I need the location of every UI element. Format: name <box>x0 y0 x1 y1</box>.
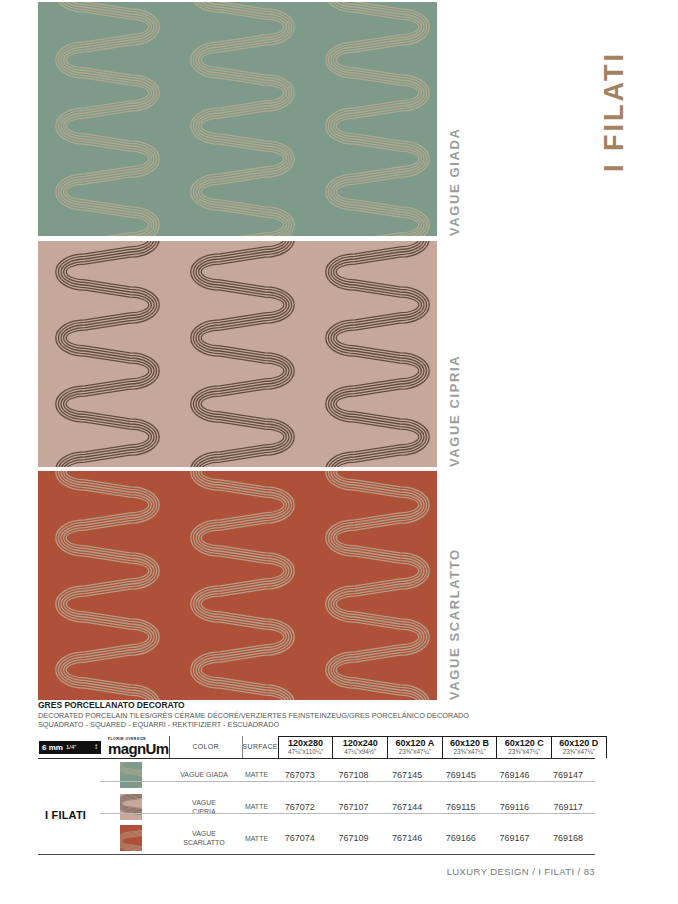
table-row-vague-scarlatto: VAGUE SCARLATTO MATTE 767074 767109 7671… <box>38 823 595 855</box>
column-header-surface: SURFACE <box>242 736 278 758</box>
tile-swatch-vague-cipria <box>38 241 437 467</box>
material-translations: DECORATED PORCELAIN TILES/GRÈS CÉRAME DÉ… <box>38 711 598 720</box>
color-thumbnail-giada <box>120 762 142 788</box>
column-header-size-60x120c: 60x120 C 23⅝"x47¼" <box>496 736 551 758</box>
product-code: 767108 <box>327 770 381 780</box>
thickness-arrow-icon: ↕ <box>94 743 98 751</box>
column-header-size-60x120d: 60x120 D 23⅝"x47¼" <box>551 736 607 758</box>
column-header-size-120x280: 120x280 47¼"x110¼" <box>278 736 333 758</box>
table-row-vague-giada: VAGUE GIADA MATTE 767073 767108 767145 7… <box>38 759 595 791</box>
table-bottom-border <box>38 854 595 855</box>
swatch-panel-vague-scarlatto <box>38 471 437 700</box>
color-thumbnail-cipria <box>120 794 142 820</box>
column-header-color: COLOR <box>170 736 242 758</box>
product-code: 767144 <box>380 802 434 812</box>
product-code: 769147 <box>541 770 595 780</box>
row-divider <box>100 813 595 814</box>
product-code: 769167 <box>488 833 542 843</box>
material-finishing: SQUADRATO - SQUARED - EQUARRI - REKTIFIZ… <box>38 720 598 729</box>
product-code: 769146 <box>488 770 542 780</box>
swatch-label-vague-scarlatto: VAGUE SCARLATTO <box>447 471 465 700</box>
product-code: 767107 <box>327 802 381 812</box>
table-row-vague-cipria: VAGUE CIPRIA MATTE 767072 767107 767144 … <box>38 791 595 823</box>
product-code: 769115 <box>434 802 488 812</box>
surface-value: MATTE <box>240 803 273 810</box>
page-footer: LUXURY DESIGN / I FILATI / 83 <box>447 866 595 877</box>
surface-value: MATTE <box>240 835 273 842</box>
brand-cell: 6 mm 1/4" ↕ FLORIM OVERSIZE magnUm <box>38 736 170 758</box>
swatch-panel-vague-cipria <box>38 241 437 467</box>
swatch-label-vague-cipria: VAGUE CIPRIA <box>447 241 465 467</box>
thickness-badge: 6 mm 1/4" ↕ <box>39 741 101 754</box>
row-divider <box>100 781 595 782</box>
product-code: 767146 <box>380 833 434 843</box>
spec-table-body: I FILATI VAGUE GIADA MATTE 767073 767108… <box>38 759 595 855</box>
product-code: 767073 <box>273 770 327 780</box>
catalog-page: VAGUE GIADA VAGUE CIPRIA VAGUE SCARLATTO… <box>0 0 678 904</box>
surface-value: MATTE <box>240 771 273 778</box>
product-code: 769166 <box>434 833 488 843</box>
product-code: 767074 <box>273 833 327 843</box>
product-code: 767072 <box>273 802 327 812</box>
thickness-mm: 6 mm <box>42 743 63 752</box>
thickness-inches: 1/4" <box>66 744 76 750</box>
tile-swatch-vague-giada <box>38 2 437 236</box>
color-thumbnail-scarlatto <box>120 825 142 851</box>
column-header-size-60x120a: 60x120 A 23⅝"x47¼" <box>387 736 442 758</box>
product-code: 767145 <box>380 770 434 780</box>
material-description: GRES PORCELLANATO DECORATO DECORATED POR… <box>38 700 598 729</box>
tile-swatch-vague-scarlatto <box>38 471 437 700</box>
product-code: 769168 <box>541 833 595 843</box>
color-name: VAGUE SCARLATTO <box>180 829 228 847</box>
collection-title: I FILATI <box>599 30 630 172</box>
spec-table-header: 6 mm 1/4" ↕ FLORIM OVERSIZE magnUm COLOR… <box>38 736 595 759</box>
swatch-label-vague-giada: VAGUE GIADA <box>447 2 465 236</box>
product-code: 769117 <box>541 802 595 812</box>
spec-table: 6 mm 1/4" ↕ FLORIM OVERSIZE magnUm COLOR… <box>38 736 595 855</box>
material-title: GRES PORCELLANATO DECORATO <box>38 700 598 711</box>
product-code: 767109 <box>327 833 381 843</box>
column-header-size-60x120b: 60x120 B 23⅝"x47¼" <box>442 736 497 758</box>
swatch-panel-vague-giada <box>38 2 437 236</box>
brand-logo: FLORIM OVERSIZE magnUm <box>108 738 169 757</box>
column-header-size-120x240: 120x240 47¼"x94½" <box>332 736 387 758</box>
product-code: 769116 <box>488 802 542 812</box>
brand-name: magnUm <box>108 741 169 756</box>
color-name: VAGUE GIADA <box>180 770 228 779</box>
product-code: 769145 <box>434 770 488 780</box>
series-group-label: I FILATI <box>45 809 86 821</box>
